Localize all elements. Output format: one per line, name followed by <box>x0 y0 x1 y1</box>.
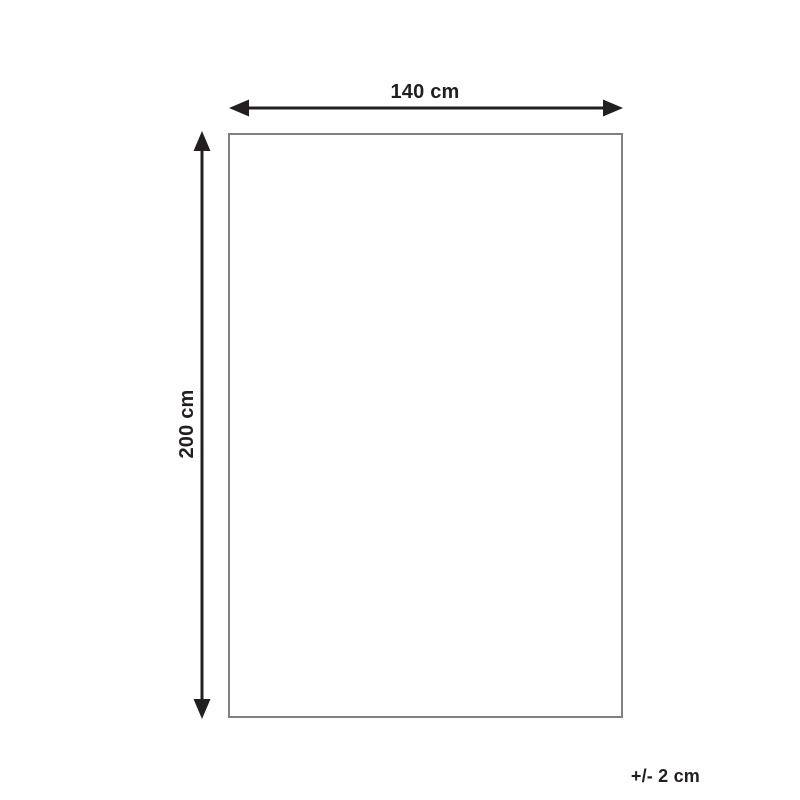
height-dimension-label: 200 cm <box>176 379 198 469</box>
diagram-graphics <box>0 0 800 800</box>
height-arrow-bottom-head-icon <box>194 699 211 719</box>
tolerance-label: +/- 2 cm <box>631 766 700 787</box>
dimension-diagram: 140 cm 200 cm +/- 2 cm <box>0 0 800 800</box>
product-outline-rect <box>229 134 622 717</box>
width-dimension-label: 140 cm <box>228 81 622 104</box>
height-arrow-top-head-icon <box>194 131 211 151</box>
